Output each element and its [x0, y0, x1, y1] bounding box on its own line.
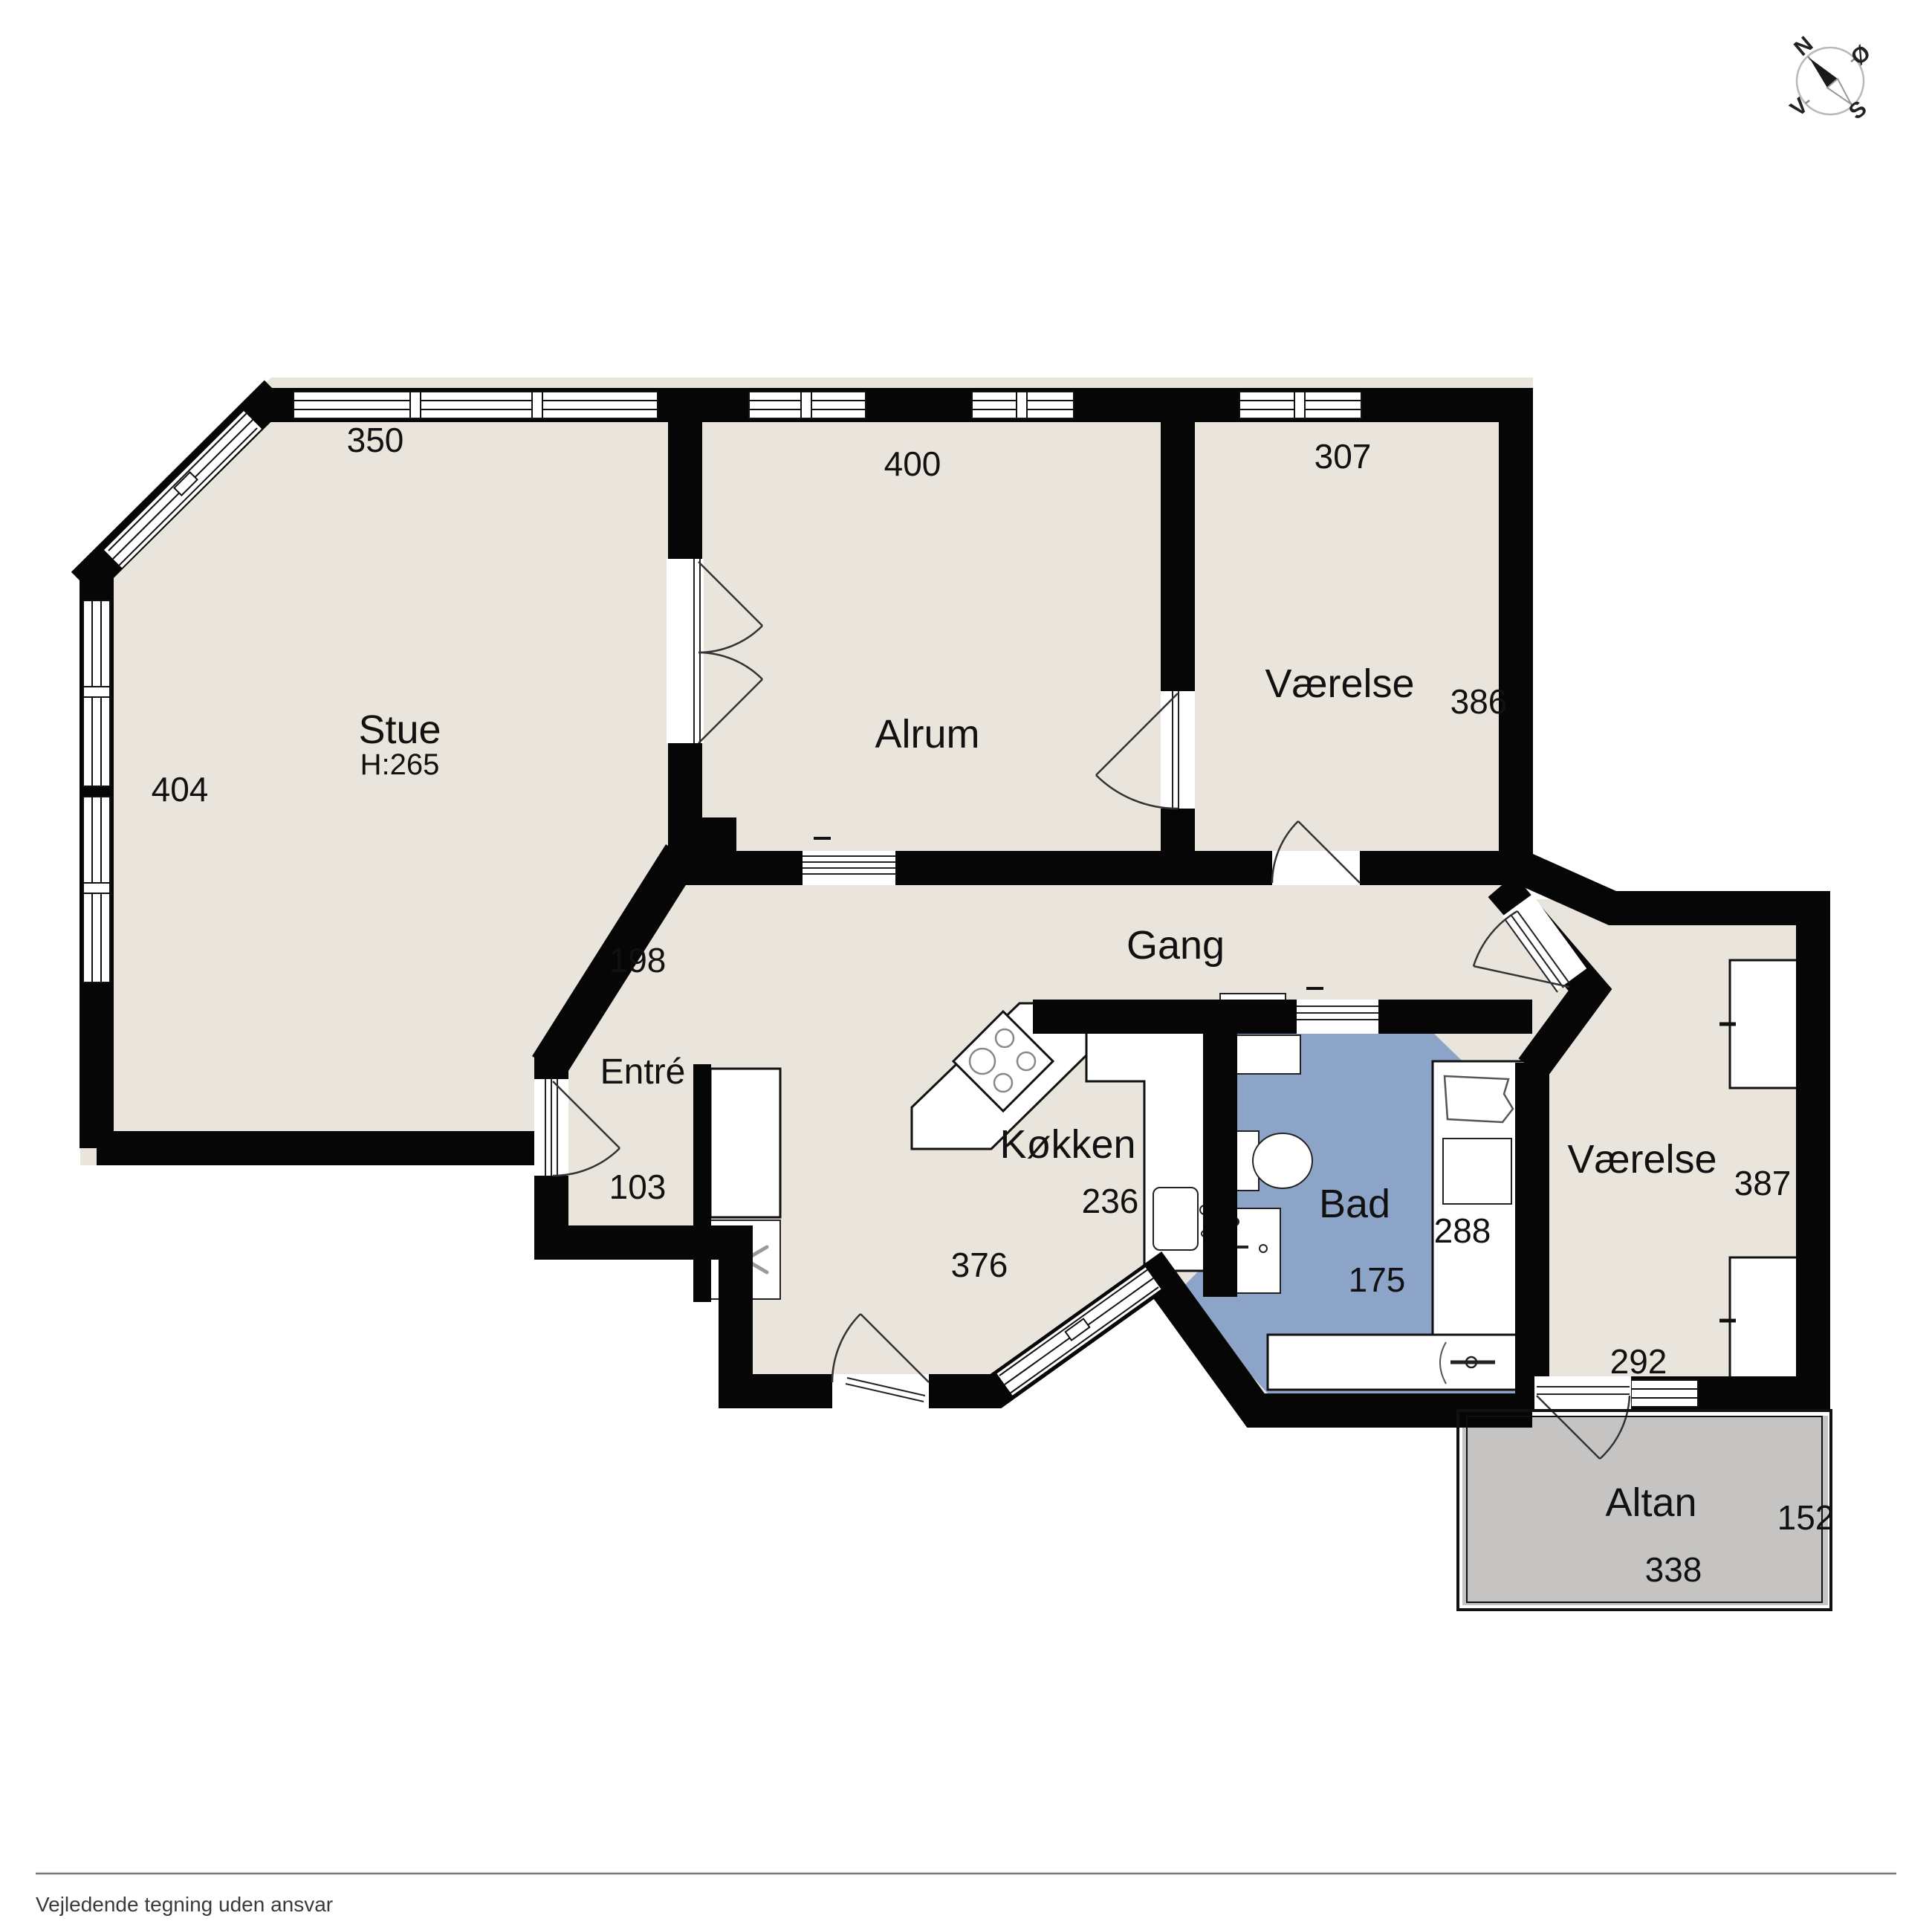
compass-icon: N Ø S V: [1786, 32, 1876, 125]
measure-koekken-depth: 376: [951, 1246, 1008, 1284]
footer-disclaimer: Vejledende tegning uden ansvar: [36, 1893, 333, 1916]
label-alrum: Alrum: [875, 712, 979, 757]
window-alrum-left: [749, 392, 866, 418]
measure-altan-depth: 152: [1777, 1498, 1835, 1537]
window-vaerelse-top: [1239, 392, 1361, 418]
floor-plan: Stue H:265 Alrum Værelse Gang Entré Køkk…: [0, 0, 1932, 1930]
measure-vaerelse-top-depth: 386: [1450, 682, 1508, 721]
window-stue-top: [294, 392, 658, 418]
window-altan: [1631, 1380, 1698, 1407]
measure-vaerelse-bottom-depth: 387: [1734, 1164, 1792, 1202]
wardrobe-top: [1719, 960, 1798, 1088]
wardrobe-bottom: [1719, 1257, 1798, 1384]
label-stue-height: H:265: [360, 748, 440, 781]
window-stue-left-lower: [83, 797, 110, 982]
label-entre: Entré: [600, 1052, 686, 1092]
measure-vaerelse-top-width: 307: [1315, 437, 1372, 476]
entre-cabinet: [710, 1069, 780, 1217]
floor-areas: [80, 378, 1830, 1605]
toilet: [1235, 1131, 1312, 1191]
label-koekken: Køkken: [999, 1122, 1135, 1167]
measure-vaerelse-bottom-width: 292: [1610, 1342, 1667, 1381]
label-altan: Altan: [1605, 1480, 1696, 1525]
measure-bad-depth: 288: [1434, 1211, 1491, 1250]
measure-stue-top: 350: [347, 421, 404, 459]
measure-koekken-width: 236: [1082, 1182, 1139, 1220]
bathtub: [1268, 1335, 1517, 1390]
measure-stue-left: 404: [152, 770, 209, 809]
measure-gang-diagonal: 198: [609, 941, 667, 979]
label-gang: Gang: [1127, 923, 1225, 968]
window-stue-left-upper: [83, 600, 110, 786]
kitchen-sink: [1153, 1188, 1198, 1250]
measure-alrum-top: 400: [884, 444, 941, 483]
label-vaerelse-top: Værelse: [1265, 661, 1414, 706]
window-alrum-right: [972, 392, 1074, 418]
measure-altan-width: 338: [1645, 1550, 1702, 1589]
label-vaerelse-bottom: Værelse: [1567, 1137, 1717, 1182]
measure-bad-width: 175: [1349, 1260, 1406, 1299]
label-bad: Bad: [1319, 1182, 1390, 1226]
washing-machine: [1443, 1139, 1511, 1204]
compass-label-east: Ø: [1847, 40, 1876, 70]
measure-entre-width: 103: [609, 1168, 667, 1206]
label-stue: Stue: [358, 707, 441, 752]
footer: Vejledende tegning uden ansvar: [36, 1874, 1896, 1916]
cabinet-wall-stub: [693, 1064, 711, 1302]
compass-label-west: V: [1786, 93, 1813, 121]
compass-label-north: N: [1789, 32, 1818, 61]
